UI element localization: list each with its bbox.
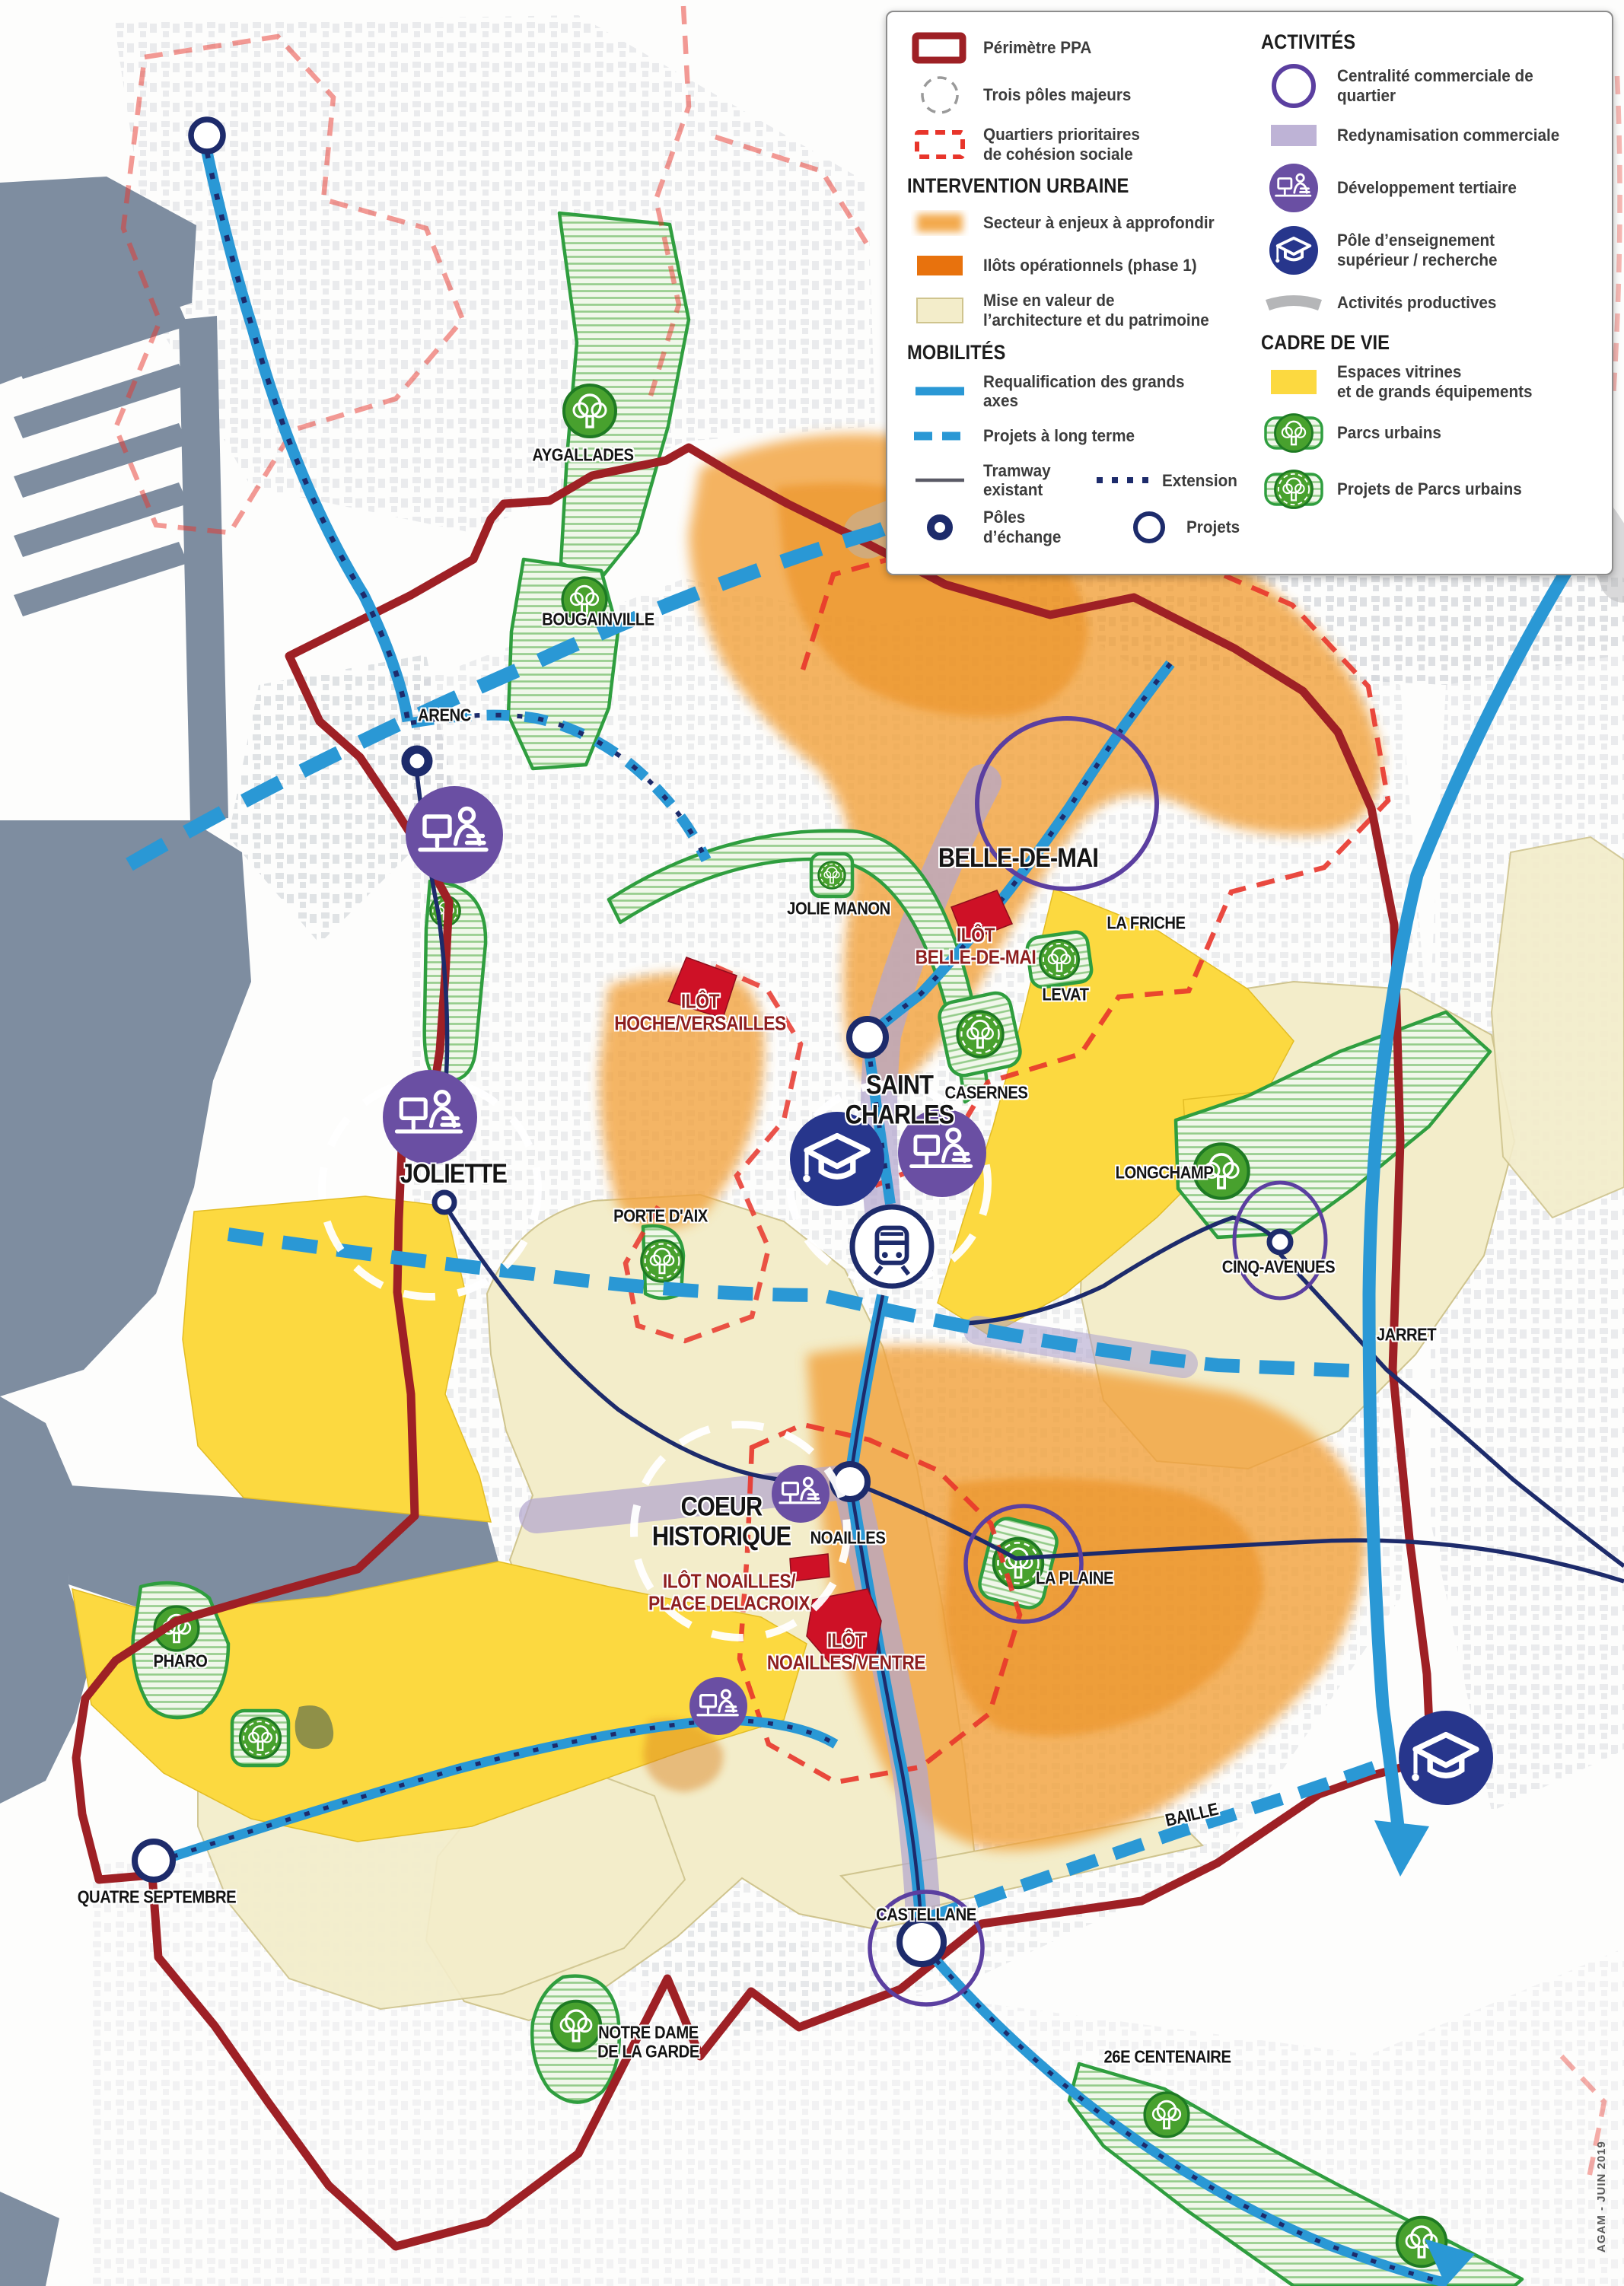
legend-label: Projets à long terme [983, 426, 1135, 446]
vitrines-swatch [1261, 365, 1326, 399]
label-ilot-belle-de-mai: ILÔT BELLE-DE-MAI [915, 924, 1036, 967]
legend-col-right: ACTIVITÉS Centralité commerciale de quar… [1261, 30, 1598, 562]
label-notre-dame: NOTRE DAME DE LA GARDE [597, 2023, 699, 2062]
label-bougainville: BOUGAINVILLE [542, 610, 654, 629]
legend-panel: Périmètre PPA Trois pôles majeurs Quarti… [886, 11, 1613, 575]
legend-item-parcs-urbains: Parcs urbains [1261, 409, 1598, 457]
legend-label: Activités productives [1337, 293, 1496, 313]
label-jarret: JARRET [1377, 1325, 1436, 1344]
legend-header-intervention-urbaine: INTERVENTION URBAINE [907, 174, 1204, 198]
redynamisation-swatch [1261, 120, 1326, 151]
legend-item-tramway: Tramway existant Extension [907, 461, 1244, 500]
label-ilot-noailles-delacroix: ILÔT NOAILLES/ PLACE DELACROIX [648, 1570, 810, 1613]
productives-swatch [1261, 289, 1326, 317]
label-quatre-septembre: QUATRE SEPTEMBRE [78, 1887, 237, 1906]
label-aygallades: AYGALLADES [532, 445, 633, 464]
gare-icon [852, 1207, 931, 1286]
label-porte-daix: PORTE D'AIX [613, 1206, 708, 1225]
label-26e-centenaire: 26E CENTENAIRE [1103, 2047, 1231, 2066]
label-ilot-noailles-ventre: ILÔT NOAILLES/VENTRE [767, 1629, 925, 1673]
ilots-swatch [907, 252, 973, 279]
projets-lt-swatch [907, 428, 973, 444]
legend-item-vitrines: Espaces vitrines et de grands équipement… [1261, 362, 1598, 401]
legend-item-ilots: Ilôts opérationnels (phase 1) [907, 248, 1244, 283]
legend-item-productives: Activités productives [1261, 285, 1598, 320]
label-joliette: JOLIETTE [400, 1160, 507, 1189]
label-ilot-hoche-versailles: ILÔT HOCHE/VERSAILLES [614, 990, 786, 1033]
legend-label: Trois pôles majeurs [983, 85, 1131, 105]
credit-vertical: AGAM - JUIN 2019 [1595, 2141, 1608, 2253]
label-pharo: PHARO [154, 1651, 208, 1670]
legend-item-perimetre-ppa: Périmètre PPA [907, 30, 1244, 65]
label-la-plaine: LA PLAINE [1036, 1568, 1113, 1587]
legend-header-mobilites: MOBILITÉS [907, 341, 1204, 365]
legend-label: Tramway existant [983, 461, 1075, 500]
poles-echange-swatch [907, 511, 973, 544]
legend-item-trois-poles: Trois pôles majeurs [907, 73, 1244, 117]
legend-item-requalification: Requalification des grands axes [907, 372, 1244, 411]
label-levat: LEVAT [1042, 985, 1088, 1004]
legend-item-tertiaire: Développement tertiaire [1261, 161, 1598, 215]
legend-label: Pôles d’échange [983, 508, 1101, 546]
label-cinq-avenues: CINQ-AVENUES [1222, 1257, 1335, 1276]
legend-label: Quartiers prioritaires de cohésion socia… [983, 125, 1140, 164]
legend-label: Parcs urbains [1337, 423, 1441, 443]
legend-label: Mise en valeur de l’architecture et du p… [983, 291, 1209, 330]
legend-item-secteur: Secteur à enjeux à approfondir [907, 205, 1244, 240]
label-castellane: CASTELLANE [876, 1905, 976, 1924]
label-noailles: NOAILLES [810, 1528, 886, 1547]
tramway-swatch [907, 474, 973, 486]
label-arenc: ARENC [418, 705, 471, 724]
parcs-swatch [1261, 409, 1326, 457]
legend-label: Secteur à enjeux à approfondir [983, 213, 1215, 233]
legend-header-activites: ACTIVITÉS [1261, 30, 1558, 54]
label-saint-charles: SAINT CHARLES [845, 1071, 954, 1130]
legend-label: Espaces vitrines et de grands équipement… [1337, 362, 1533, 401]
legend-item-qpv: Quartiers prioritaires de cohésion socia… [907, 125, 1244, 164]
trois-poles-swatch [907, 73, 973, 117]
centralite-swatch [1261, 62, 1326, 110]
legend-label: Pôle d’enseignement supérieur / recherch… [1337, 231, 1498, 269]
legend-label: Ilôts opérationnels (phase 1) [983, 256, 1197, 275]
legend-header-cadre-de-vie: CADRE DE VIE [1261, 331, 1558, 355]
legend-label: Requalification des grands axes [983, 372, 1224, 411]
urban-plan-map: AYGALLADES BOUGAINVILLE ARENC JOLIE MANO… [0, 0, 1624, 2286]
legend-label: Développement tertiaire [1337, 178, 1517, 198]
legend-item-centralite: Centralité commerciale de quartier [1261, 62, 1598, 110]
label-coeur-historique: COEUR HISTORIQUE [652, 1493, 791, 1552]
legend-item-projets-parcs: Projets de Parcs urbains [1261, 465, 1598, 514]
legend-item-enseignement: Pôle d’enseignement supérieur / recherch… [1261, 223, 1598, 278]
projets-parcs-swatch [1261, 465, 1326, 514]
secteur-swatch [907, 209, 973, 237]
perimetre-ppa-swatch [907, 31, 973, 65]
label-longchamp: LONGCHAMP [1116, 1163, 1214, 1182]
enseignement-swatch [1261, 223, 1326, 278]
projets-pole-swatch [1122, 509, 1176, 546]
label-jolie-manon: JOLIE MANON [787, 899, 890, 918]
legend-col-left: Périmètre PPA Trois pôles majeurs Quarti… [907, 30, 1244, 562]
mise-swatch [907, 294, 973, 327]
legend-label: Projets de Parcs urbains [1337, 479, 1522, 499]
legend-label: Périmètre PPA [983, 38, 1091, 58]
requalification-swatch [907, 384, 973, 399]
extension-swatch [1094, 474, 1151, 486]
legend-item-mise-en-valeur: Mise en valeur de l’architecture et du p… [907, 291, 1244, 330]
legend-label: Extension [1162, 471, 1237, 491]
legend-label: Centralité commerciale de quartier [1337, 66, 1578, 105]
qpv-swatch [907, 126, 973, 163]
legend-item-redynamisation: Redynamisation commerciale [1261, 118, 1598, 153]
label-la-friche: LA FRICHE [1107, 913, 1185, 932]
label-casernes: CASERNES [945, 1083, 1028, 1102]
legend-label: Redynamisation commerciale [1337, 126, 1559, 145]
tertiaire-swatch [1261, 161, 1326, 215]
legend-label: Projets [1186, 517, 1240, 537]
legend-item-poles-echange: Pôles d’échange Projets [907, 508, 1244, 546]
label-belle-de-mai: BELLE-DE-MAI [938, 844, 1098, 874]
legend-item-projets-long-terme: Projets à long terme [907, 419, 1244, 454]
